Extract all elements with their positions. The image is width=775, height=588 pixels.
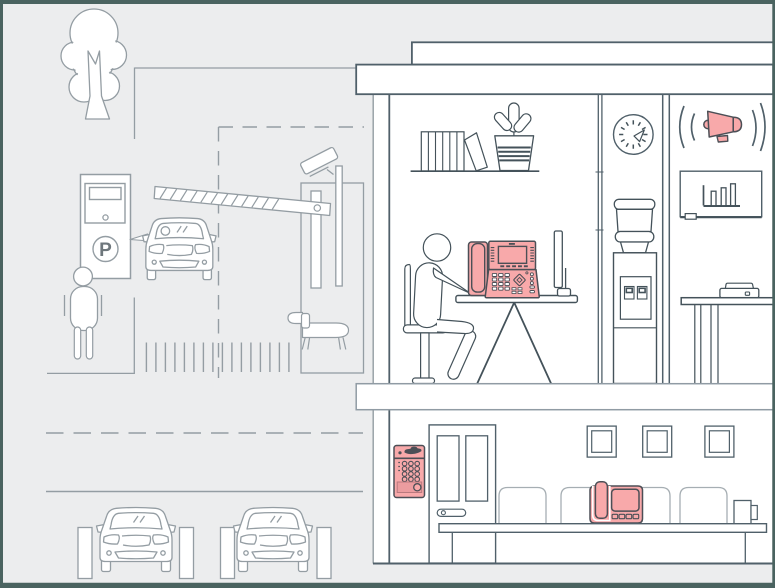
svg-text:P: P (99, 240, 112, 261)
